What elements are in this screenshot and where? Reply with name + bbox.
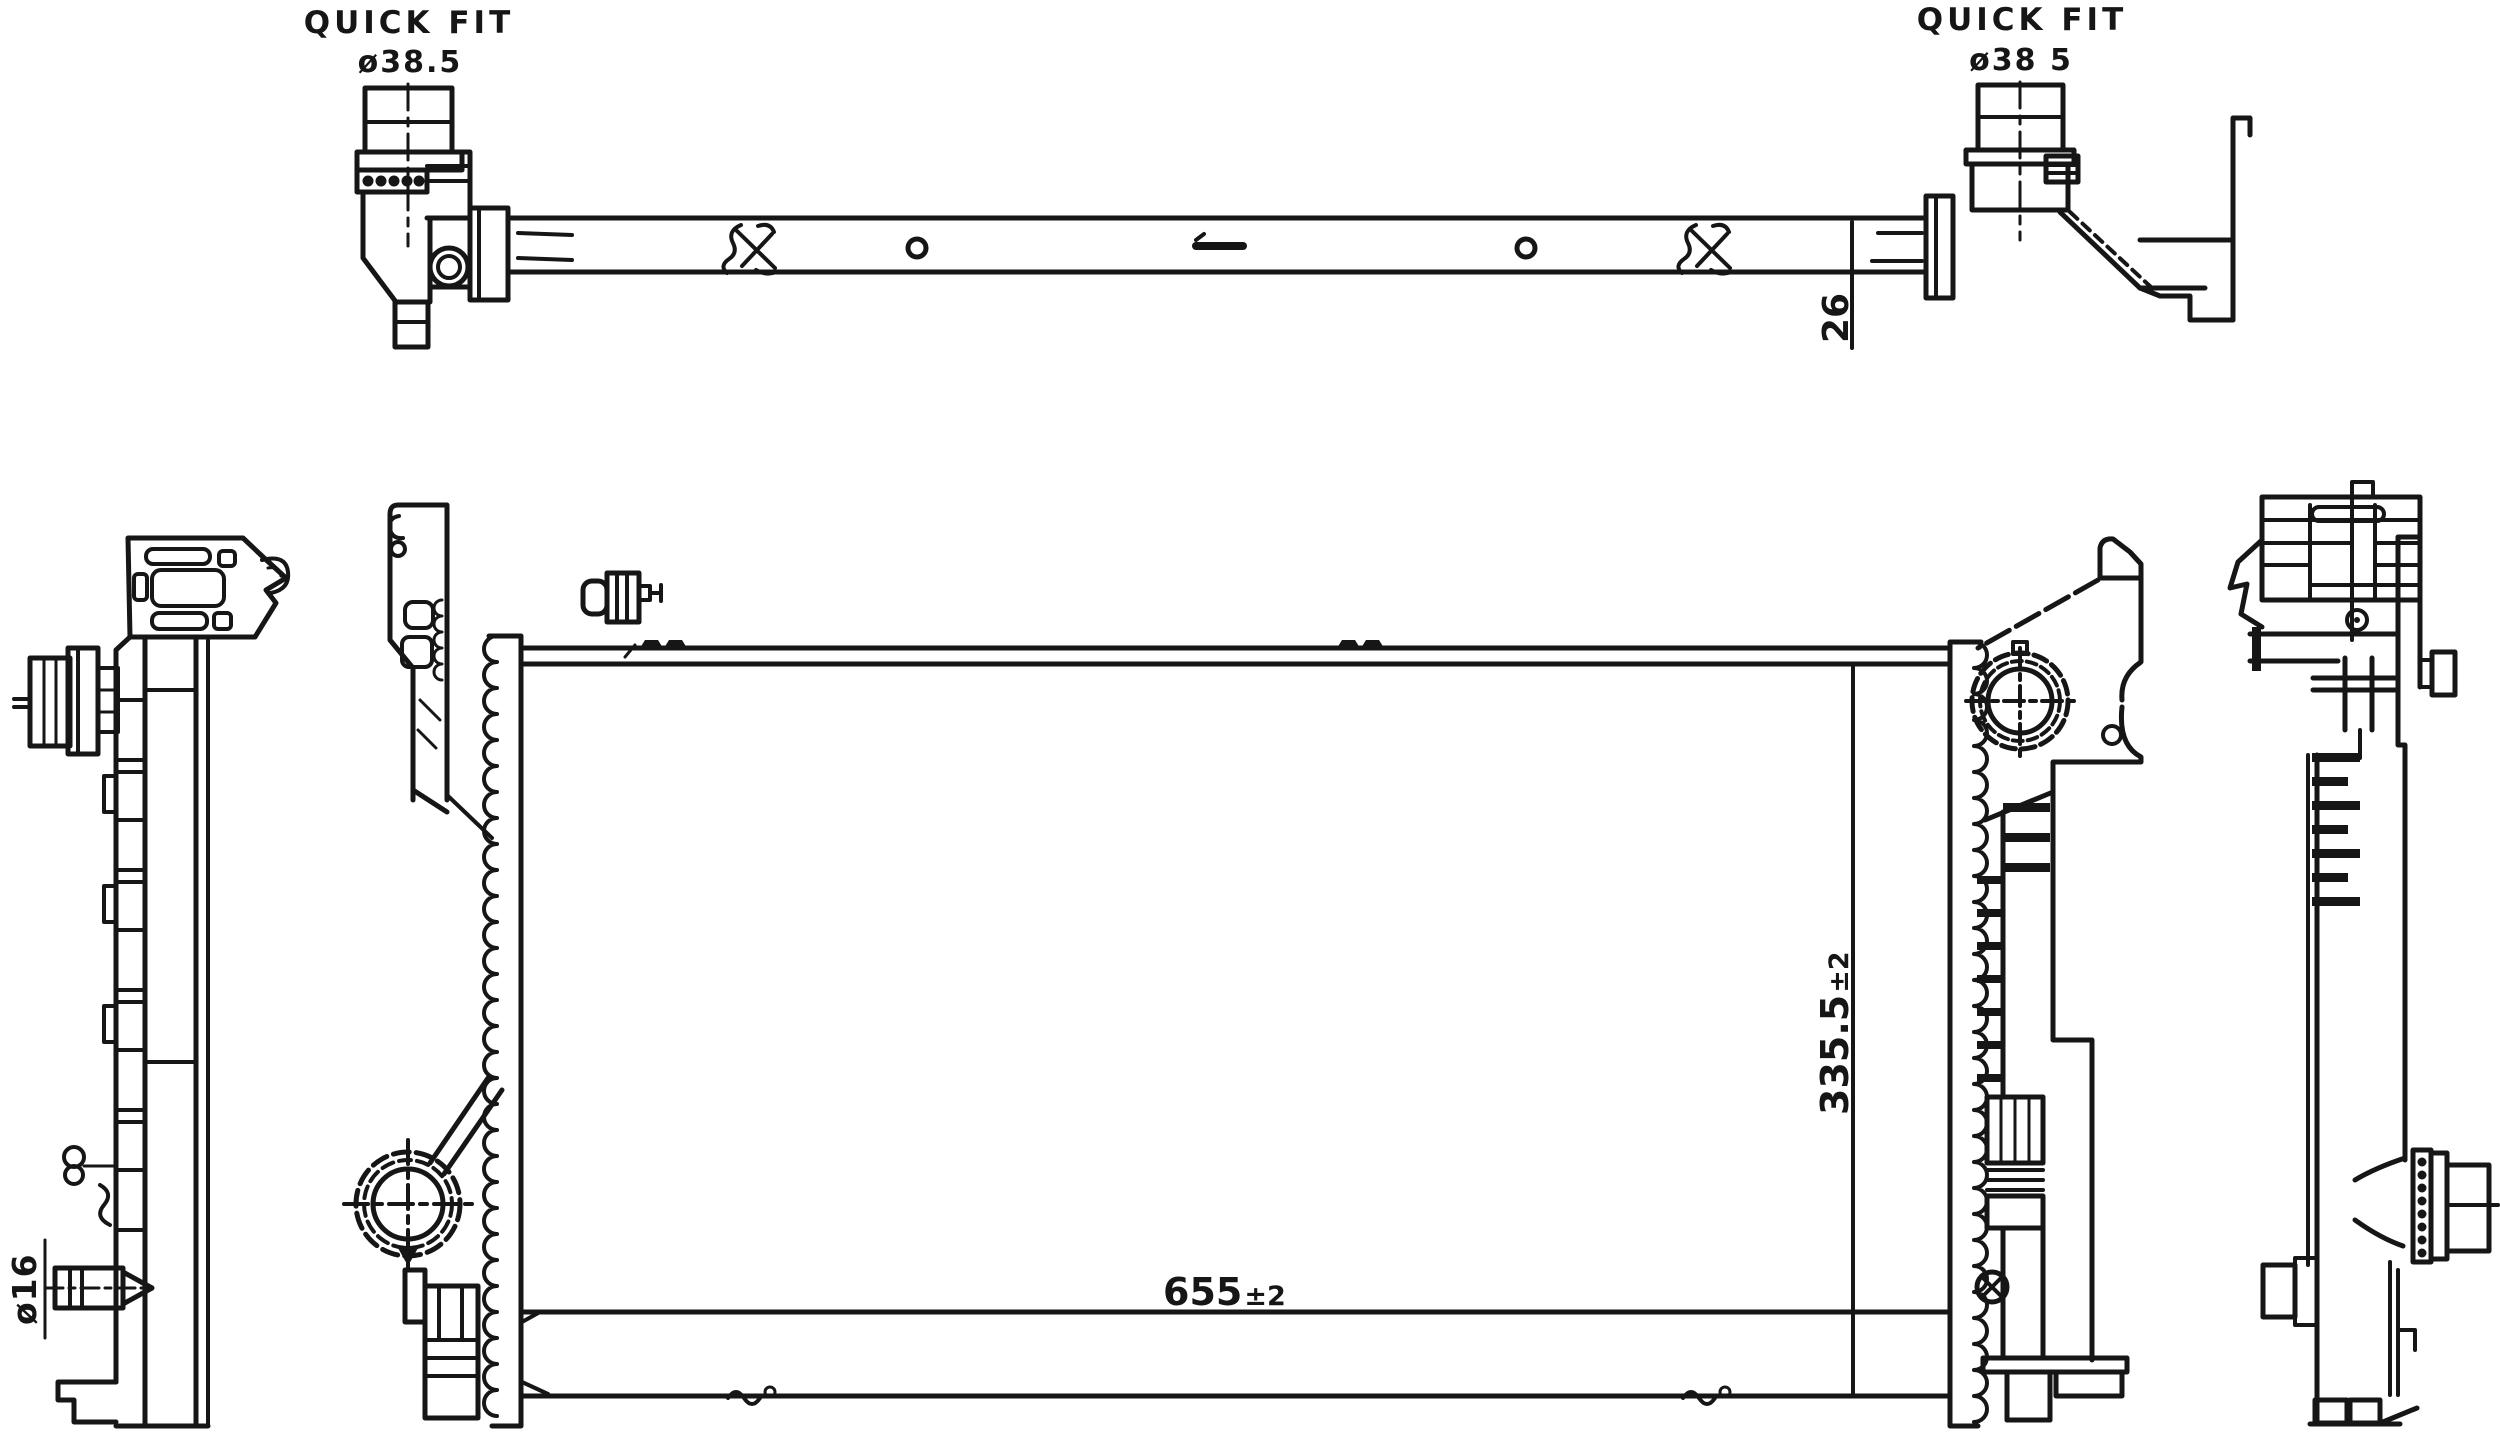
dimension-bar-thickness: 26 — [1816, 293, 1857, 343]
core-serration-left — [484, 636, 497, 1416]
sensor-cap — [583, 581, 607, 614]
fitting-diagonals — [2355, 1158, 2405, 1246]
bracket-window — [214, 613, 231, 629]
side-view-left: ø16 — [5, 538, 288, 1426]
end-foot — [2140, 288, 2233, 320]
body-bump — [104, 886, 116, 922]
bracket-window — [152, 613, 207, 629]
base-band — [2250, 634, 2398, 661]
fitting-dot — [2418, 1236, 2427, 1245]
right-block — [2432, 652, 2455, 695]
bracket-hatch — [418, 700, 440, 748]
quick-fit-label-right: QUICK FIT — [1917, 2, 2127, 38]
bracket-window — [134, 574, 147, 600]
quick-fit-diameter-left: ø38.5 — [358, 45, 463, 80]
bracket-ribs — [2003, 803, 2050, 872]
bracket-window — [146, 549, 210, 564]
connector-block-lines — [2001, 1097, 2029, 1163]
bracket-tab — [2100, 539, 2141, 578]
lower-tab — [395, 302, 428, 347]
foot-block — [2056, 1372, 2122, 1396]
drain-plug — [405, 1270, 478, 1418]
upper-crossmember: 26 — [508, 218, 1926, 348]
fitting-dot — [2418, 1249, 2427, 1258]
flange-hole — [414, 176, 425, 187]
connector-bands — [1987, 1170, 2043, 1190]
sensor-body-lines — [617, 573, 627, 622]
foot-block — [2315, 1400, 2347, 1423]
dimension-core-height: 335.5±2 — [1813, 951, 1857, 1115]
bottom-foot — [58, 1382, 208, 1426]
lower-columns — [2003, 1228, 2043, 1358]
side-pipe-fitting — [14, 648, 118, 754]
fitting-dot — [2418, 1223, 2427, 1232]
bracket-top-diagonal — [1978, 580, 2098, 648]
spring-hook — [100, 1185, 110, 1225]
core-height-value: 335.5 — [1813, 995, 1857, 1115]
coolant-sensor — [583, 573, 661, 622]
body-bump — [104, 776, 116, 812]
fitting-dot — [2418, 1210, 2427, 1219]
bracket-foot — [413, 790, 447, 812]
bracket-hook — [390, 516, 403, 538]
fitting-dot — [2418, 1158, 2427, 1167]
bracket-outline — [390, 505, 447, 800]
mount-plate — [1926, 196, 1953, 298]
flange-hole — [363, 176, 374, 187]
body-channel-lines — [145, 690, 196, 1062]
gusset-dotted — [2070, 212, 2152, 288]
pivot-dot — [2354, 617, 2360, 623]
bracket-top-left — [390, 505, 492, 838]
bracket-hole — [2103, 726, 2121, 744]
top-view: QUICK FIT ø38.5 — [304, 2, 2250, 348]
t-column — [2313, 658, 2398, 730]
retaining-clip — [723, 225, 776, 274]
bottom-hooks — [522, 1312, 548, 1394]
gusset-edge — [2060, 212, 2140, 288]
drain-verticals — [439, 1286, 462, 1340]
retaining-clip-right — [1678, 225, 1731, 274]
clip-cross — [737, 231, 775, 268]
core-strip-left-edge — [489, 636, 521, 1426]
dimension-outlet-diameter: ø16 — [5, 1253, 44, 1325]
fitting-dot — [2418, 1197, 2427, 1206]
fitting-block — [2447, 1165, 2489, 1251]
core-width-value: 655 — [1163, 1270, 1242, 1314]
left-stub — [2263, 1265, 2295, 1317]
side-view-right — [2230, 482, 2498, 1424]
core-serration-right — [1974, 642, 1987, 1422]
sensor-body — [607, 573, 639, 622]
bar-hole-left — [908, 239, 926, 257]
core-width-tolerance: ±2 — [1244, 1281, 1285, 1312]
core-height-tolerance: ±2 — [1824, 951, 1855, 992]
foot-block — [2350, 1400, 2380, 1423]
shelf — [2140, 240, 2233, 288]
drain-stub — [405, 1270, 425, 1322]
top-tank-edges — [521, 648, 1950, 664]
side-pipe-fitting-right — [2355, 1150, 2498, 1262]
quick-fit-diameter-right: ø38 5 — [1969, 43, 2073, 78]
connector-block-lower — [1987, 1196, 2043, 1228]
fitting-dot — [2418, 1184, 2427, 1193]
bracket-hole — [391, 542, 405, 556]
body-right — [2398, 690, 2405, 1160]
fitting-plate — [2413, 1150, 2431, 1262]
flange-hole — [389, 176, 400, 187]
quick-fit-connector-right: QUICK FIT ø38 5 — [1917, 2, 2250, 320]
fitting-block-line — [2447, 1190, 2498, 1220]
quick-fit-label-left: QUICK FIT — [304, 5, 514, 41]
foot-block — [2007, 1372, 2050, 1420]
body-segments — [116, 700, 145, 1230]
bolt-tab-lines — [2046, 165, 2078, 173]
fitting-pipe — [30, 658, 70, 746]
body-columns — [145, 637, 196, 1426]
inlet-port-front — [344, 1078, 502, 1268]
fitting-pipe-lines — [44, 658, 56, 746]
fitting-dot — [2418, 1171, 2427, 1180]
left-stub-flange — [2295, 1258, 2317, 1325]
lower-right-columns — [2390, 1262, 2415, 1395]
dimension-core-width: 655±2 — [1163, 1270, 1286, 1314]
drawing-canvas: QUICK FIT ø38.5 — [0, 0, 2500, 1435]
bracket-right — [1966, 539, 2141, 1420]
front-view: 655±2 335.5±2 — [344, 505, 2141, 1426]
drain-bands — [425, 1340, 478, 1376]
right-flange — [2398, 537, 2420, 690]
bracket-wing — [2230, 540, 2262, 627]
end-plate — [2233, 118, 2250, 320]
drain-outlet: ø16 — [5, 1240, 152, 1338]
flange-hole — [376, 176, 387, 187]
bracket-mini-serration — [434, 600, 442, 680]
body-bump — [104, 1006, 116, 1042]
bracket-teeth — [1977, 876, 2003, 1082]
port-ring-inner — [438, 256, 460, 278]
bar-hole-right — [1517, 239, 1535, 257]
mount-plate — [470, 208, 508, 300]
quick-fit-connector-left: QUICK FIT ø38.5 — [304, 5, 514, 347]
bracket-window — [152, 570, 224, 606]
bar-center-tick — [1196, 234, 1204, 240]
squiggle-dot — [765, 1387, 775, 1397]
foot-base — [2310, 1408, 2417, 1424]
port-ring — [430, 248, 468, 286]
drain-body — [425, 1286, 478, 1418]
bracket-window — [219, 551, 235, 566]
radiator-drawing: QUICK FIT ø38.5 — [0, 0, 2500, 1435]
base-tab — [2252, 627, 2261, 671]
bracket-window — [405, 602, 433, 628]
bracket-columns — [2003, 792, 2092, 1360]
